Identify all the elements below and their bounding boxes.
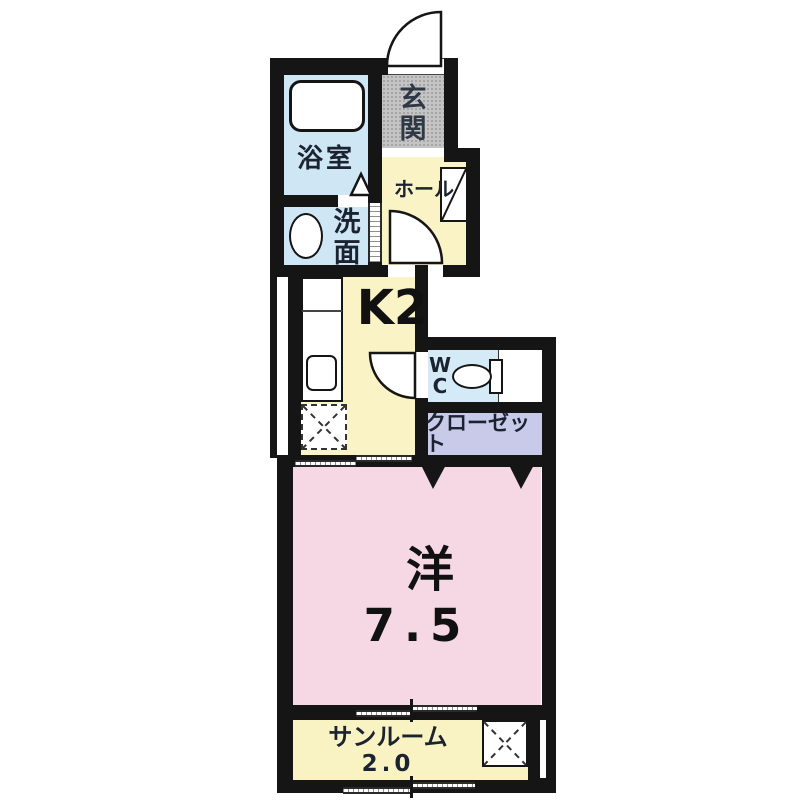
washroom-label-char2: 面 — [331, 238, 363, 268]
wc-door-arc — [370, 353, 415, 398]
washer-x — [484, 722, 526, 765]
sunroom-size: 2.0 — [290, 751, 486, 777]
bath-door-triangle — [351, 174, 371, 195]
refrigerator-x — [303, 406, 345, 448]
washer-x — [484, 722, 526, 765]
floor-plan: 浴室 洗 面 玄 関 ホール K2 W C クローゼット 洋 7.5 サンルーム… — [0, 0, 800, 800]
wc-label-char1: W — [428, 354, 452, 376]
entrance-door-arc — [387, 12, 441, 66]
entrance-label-char2: 関 — [397, 113, 429, 145]
bath-label: 浴室 — [284, 144, 368, 174]
refrigerator-x — [303, 406, 345, 448]
washroom-label-char1: 洗 — [331, 207, 363, 237]
closet-door-triangle — [420, 463, 447, 489]
western-room-label: 洋 — [400, 544, 460, 596]
kitchen-label: K2 — [350, 282, 434, 334]
wc-label-char2: C — [428, 375, 452, 397]
entrance-label-char1: 玄 — [397, 82, 429, 114]
hall-door-arc — [390, 211, 442, 263]
closet-door-triangle — [508, 463, 535, 489]
hall-label: ホール — [382, 177, 466, 201]
closet-label: クローゼット — [425, 421, 542, 447]
western-room-size: 7.5 — [293, 600, 541, 650]
sunroom-label: サンルーム — [290, 724, 486, 750]
